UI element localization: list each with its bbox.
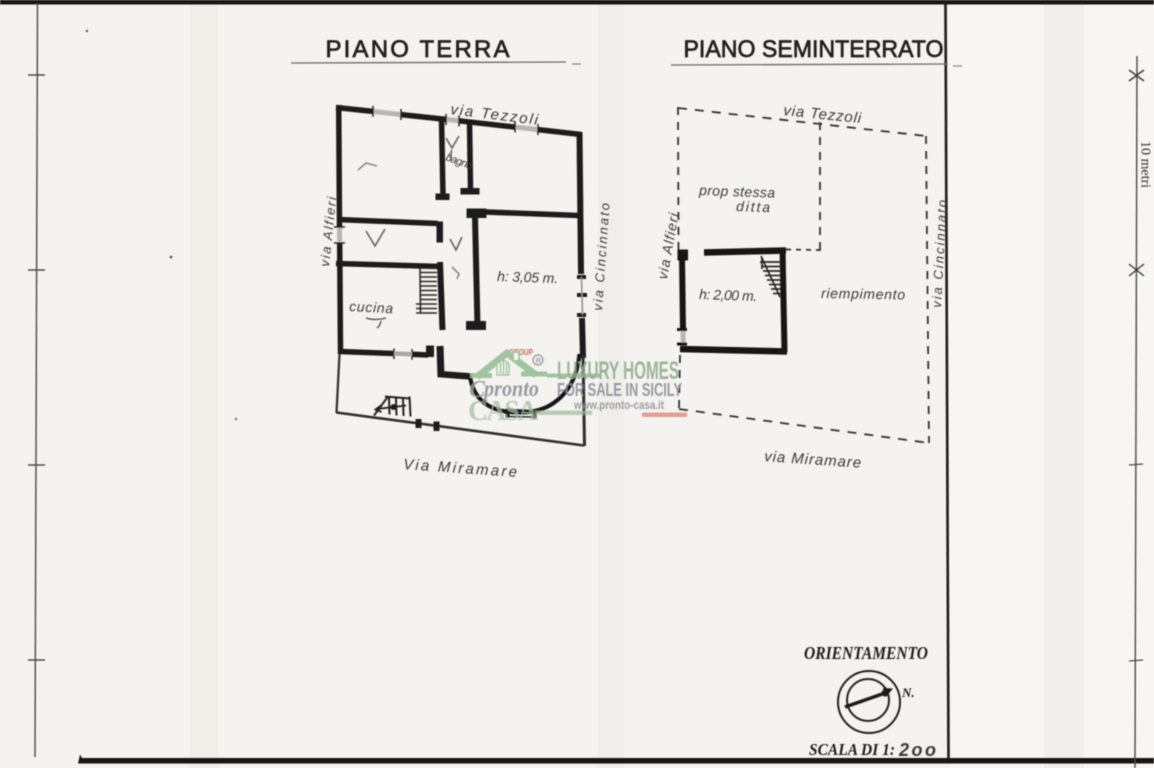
svg-text:R: R: [536, 356, 542, 365]
svg-text:FOR SALE IN SICILY: FOR SALE IN SICILY: [557, 380, 682, 400]
svg-text:PIANO SEMINTERRATO: PIANO SEMINTERRATO: [684, 36, 944, 63]
svg-text:www.pronto-casa.it: www.pronto-casa.it: [573, 398, 664, 412]
svg-text:h: 3,05 m.: h: 3,05 m.: [497, 268, 559, 286]
svg-text:cucina: cucina: [349, 298, 394, 316]
svg-text:2oo: 2oo: [898, 740, 939, 760]
svg-text:SCALA DI 1:: SCALA DI 1:: [809, 740, 895, 759]
svg-text:ditta: ditta: [736, 198, 771, 215]
svg-text:h: 2,00 m.: h: 2,00 m.: [699, 286, 758, 304]
svg-text:CASA: CASA: [468, 396, 539, 427]
svg-text:10 metri: 10 metri: [1138, 141, 1153, 188]
svg-text:ORIENTAMENTO: ORIENTAMENTO: [804, 643, 928, 663]
svg-text:riempimento: riempimento: [821, 285, 905, 302]
svg-text:N.: N.: [901, 685, 915, 700]
